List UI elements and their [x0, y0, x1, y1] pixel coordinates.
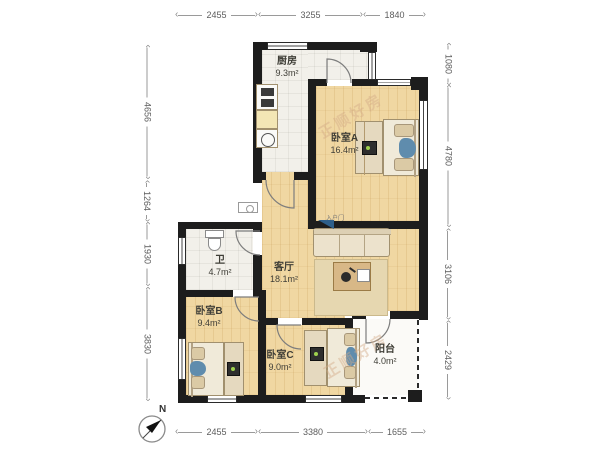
room-name: 卧室C	[251, 350, 309, 362]
room-name: 厨房	[263, 56, 311, 68]
room-area: 9.4m²	[183, 318, 235, 328]
dim-right-3: 3106	[442, 228, 454, 320]
dim-value: 3830	[143, 330, 153, 358]
room-label-bedroomC: 卧室C 9.0m²	[251, 350, 309, 372]
dim-value: 1930	[143, 240, 153, 268]
dim-right-4: 2429	[442, 320, 454, 400]
room-label-bath: 卫 4.7m²	[196, 255, 244, 277]
dim-left-3: 1930	[142, 222, 154, 287]
dim-value: 1840	[380, 10, 408, 20]
room-name: 卧室B	[183, 306, 235, 318]
dim-left-4: 3830	[142, 287, 154, 402]
dim-value: 3255	[296, 10, 324, 20]
room-label-balcony: 阳台 4.0m²	[360, 344, 410, 366]
dim-value: 2455	[202, 10, 230, 20]
dim-right-1: 1080	[443, 43, 455, 86]
dim-value: 3380	[299, 427, 327, 437]
compass	[139, 416, 165, 442]
room-name: 卫	[196, 255, 244, 267]
room-area: 4.7m²	[196, 267, 244, 277]
dim-value: 1655	[383, 427, 411, 437]
door-arc-bedroomB	[235, 297, 259, 321]
room-name: 阳台	[360, 344, 410, 356]
dim-bottom-3: 1655	[368, 426, 426, 438]
dim-top-1: 2455	[175, 9, 258, 21]
dim-value: 2429	[443, 346, 453, 374]
room-area: 9.3m²	[263, 68, 311, 78]
room-name: 卧室A	[312, 133, 377, 145]
room-area: 18.1m²	[255, 274, 313, 284]
door-arc-kitchen	[266, 180, 294, 208]
room-label-bedroomA: 卧室A 16.4m²	[312, 133, 377, 155]
dim-top-3: 1840	[363, 9, 426, 21]
dim-left-2: 1264	[141, 180, 153, 222]
dim-value: 4780	[444, 142, 454, 170]
dim-top-2: 3255	[258, 9, 363, 21]
room-label-bedroomB: 卧室B 9.4m²	[183, 306, 235, 328]
room-label-living: 客厅 18.1m²	[255, 262, 313, 284]
door-arc-bedroomC	[277, 325, 301, 349]
room-label-kitchen: 厨房 9.3m²	[263, 56, 311, 78]
dim-value: 4656	[143, 98, 153, 126]
dim-left-1: 4656	[142, 45, 154, 180]
entry-door-label: 入户门	[326, 213, 344, 222]
dim-value: 3106	[443, 260, 453, 288]
dim-right-2: 4780	[443, 85, 455, 228]
dim-bottom-2: 3380	[258, 426, 368, 438]
dim-value: 2455	[202, 427, 230, 437]
door-arc-bedroomA	[327, 59, 351, 83]
door-arc-bathroom	[236, 231, 260, 255]
dim-value: 1080	[444, 50, 454, 78]
room-area: 16.4m²	[312, 145, 377, 155]
room-area: 4.0m²	[360, 356, 410, 366]
room-area: 9.0m²	[251, 362, 309, 372]
dim-bottom-1: 2455	[175, 426, 258, 438]
dim-value: 1264	[142, 187, 152, 215]
floorplan: 入户门 厨房 9.3m² 卧室A 16.4m² 卫 4.7m² 客厅 18.1m…	[0, 0, 600, 450]
room-name: 客厅	[255, 262, 313, 274]
